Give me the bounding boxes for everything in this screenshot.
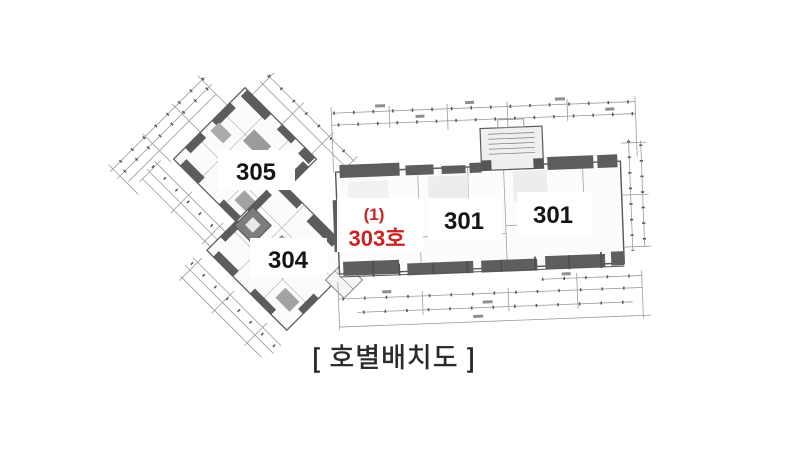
- unit-label-text-301-right: 301: [533, 202, 573, 229]
- floor-plan-image: 305 304 301 301 (1) 303호 [ 호별배치도 ]: [0, 0, 800, 455]
- plan-caption: [ 호별배치도 ]: [312, 343, 475, 373]
- unit-label-305: 305: [218, 150, 295, 190]
- unit-label-301-right: 301: [517, 192, 591, 234]
- unit-label-text-305: 305: [236, 159, 276, 186]
- highlighted-unit-index: (1): [364, 205, 385, 224]
- unit-label-301-left: 301: [428, 198, 502, 240]
- unit-label-text-304: 304: [268, 247, 309, 274]
- unit-label-304: 304: [250, 238, 327, 278]
- highlighted-unit-label-303: (1) 303호: [337, 198, 423, 252]
- unit-label-text-301-left: 301: [444, 208, 484, 235]
- floor-plan-canvas: 305 304 301 301 (1) 303호 [ 호별배치도 ]: [0, 0, 800, 455]
- highlighted-unit-name: 303호: [349, 226, 406, 251]
